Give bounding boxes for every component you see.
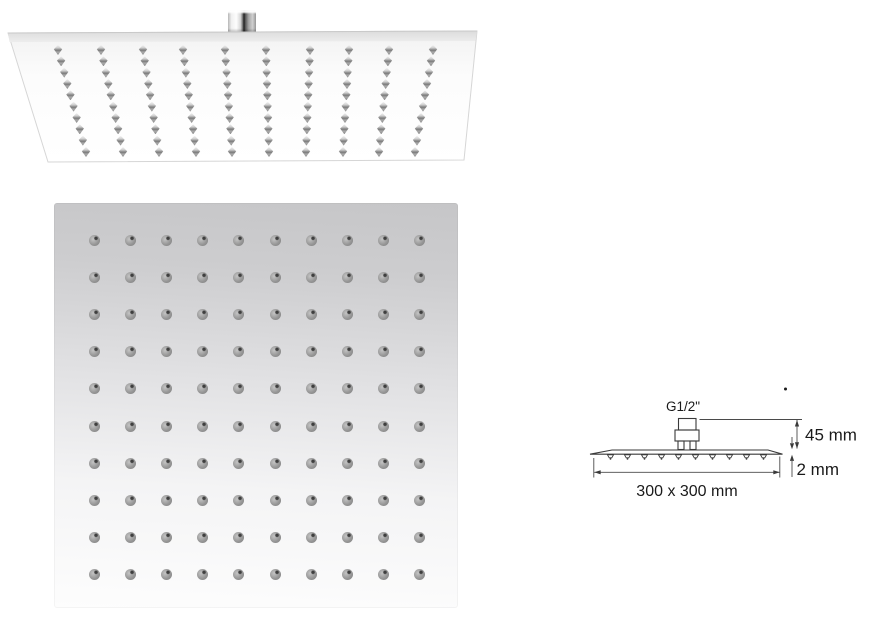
spray-nozzle	[89, 569, 100, 580]
spray-nozzle	[233, 272, 244, 283]
width-dimension	[594, 457, 780, 478]
spray-nozzle	[342, 235, 353, 246]
spray-nozzle	[378, 102, 389, 112]
spray-nozzle	[197, 346, 208, 357]
side-view-nozzle	[608, 455, 614, 458]
spray-nozzle	[414, 421, 425, 432]
spray-nozzle	[306, 532, 317, 543]
side-view-nozzle-tip	[627, 458, 629, 460]
spray-nozzle	[189, 136, 200, 146]
spray-nozzle	[416, 113, 427, 123]
side-view-nozzle-tip	[712, 458, 714, 460]
spray-nozzle	[197, 458, 208, 469]
spray-nozzle	[344, 45, 355, 55]
spray-nozzle	[220, 45, 231, 55]
side-view-nozzle-tip	[661, 458, 663, 460]
spray-nozzle	[182, 79, 193, 89]
spray-nozzle	[125, 569, 136, 580]
spray-nozzle	[343, 56, 354, 66]
spray-nozzle	[270, 532, 281, 543]
spray-nozzle	[306, 495, 317, 506]
spray-nozzle	[197, 569, 208, 580]
spray-nozzle	[378, 272, 389, 283]
spray-nozzle	[154, 147, 165, 157]
spray-nozzle	[225, 124, 236, 134]
spray-nozzle	[191, 147, 202, 157]
spray-nozzle	[197, 309, 208, 320]
spray-nozzle	[197, 383, 208, 394]
spray-nozzle	[197, 235, 208, 246]
spray-nozzle	[414, 532, 425, 543]
spray-nozzle	[270, 235, 281, 246]
spray-nozzle	[303, 79, 314, 89]
spray-nozzle	[178, 45, 189, 55]
spray-nozzle	[220, 56, 231, 66]
spray-nozzle	[414, 458, 425, 469]
spray-nozzle	[53, 45, 64, 55]
spray-nozzle	[62, 79, 73, 89]
spray-nozzle	[139, 56, 150, 66]
spray-nozzle	[342, 421, 353, 432]
spray-nozzle	[233, 421, 244, 432]
spray-nozzle	[378, 235, 389, 246]
spray-nozzle	[161, 235, 172, 246]
spray-nozzle	[89, 346, 100, 357]
spray-nozzle	[375, 136, 386, 146]
spray-nozzle	[233, 309, 244, 320]
spray-nozzle	[89, 532, 100, 543]
spray-nozzle	[302, 102, 313, 112]
spray-nozzle	[270, 458, 281, 469]
spray-nozzle	[74, 124, 85, 134]
spray-nozzle	[382, 56, 393, 66]
spray-nozzle	[65, 90, 76, 100]
side-view-nozzle	[676, 455, 682, 458]
spray-nozzle	[270, 309, 281, 320]
spray-nozzle	[301, 136, 312, 146]
spray-nozzle	[263, 124, 274, 134]
spray-nozzle	[146, 102, 157, 112]
side-view-nozzle-tip	[729, 458, 731, 460]
spray-nozzle	[68, 102, 79, 112]
spray-nozzle	[414, 309, 425, 320]
side-view-nozzle	[642, 455, 648, 458]
spray-nozzle	[71, 113, 82, 123]
spray-nozzle	[264, 147, 275, 157]
spray-nozzle	[110, 113, 121, 123]
spray-nozzle	[125, 383, 136, 394]
spray-nozzle	[270, 421, 281, 432]
spray-nozzle	[125, 421, 136, 432]
spray-nozzle	[118, 147, 129, 157]
spray-nozzle	[125, 532, 136, 543]
spray-nozzle	[180, 68, 191, 78]
side-view-nozzle	[761, 455, 767, 458]
side-view-nozzle-tip	[610, 458, 612, 460]
spray-nozzle	[233, 346, 244, 357]
spray-nozzle	[150, 124, 161, 134]
spray-nozzle	[306, 309, 317, 320]
spray-nozzle	[378, 309, 389, 320]
side-view-connector	[675, 419, 699, 450]
spray-nozzle	[414, 124, 425, 134]
bottom-nozzle-grid	[54, 203, 458, 608]
spray-nozzle	[89, 272, 100, 283]
spray-nozzle	[125, 235, 136, 246]
spray-nozzle	[125, 458, 136, 469]
spray-nozzle	[56, 56, 67, 66]
showerhead-perspective-view	[0, 0, 492, 175]
spray-nozzle	[340, 102, 351, 112]
spray-nozzle	[161, 569, 172, 580]
spray-nozzle	[263, 113, 274, 123]
spray-nozzle	[304, 56, 315, 66]
spray-nozzle	[342, 458, 353, 469]
spray-nozzle	[224, 113, 235, 123]
spray-nozzle	[306, 421, 317, 432]
spray-nozzle	[185, 102, 196, 112]
spray-nozzle	[306, 458, 317, 469]
side-view-plate	[590, 450, 783, 454]
spray-nozzle	[77, 136, 88, 146]
spray-nozzle	[338, 136, 349, 146]
side-view-nozzles	[608, 455, 767, 460]
spray-nozzle	[145, 90, 156, 100]
spray-nozzle	[89, 383, 100, 394]
side-view-nozzle-tip	[746, 458, 748, 460]
spray-nozzle	[143, 79, 154, 89]
spray-nozzle	[197, 532, 208, 543]
spray-nozzle	[426, 56, 437, 66]
spray-nozzle	[161, 458, 172, 469]
side-view-nozzle	[693, 455, 699, 458]
spray-nozzle	[188, 124, 199, 134]
spray-nozzle	[263, 136, 274, 146]
thickness-dimension	[790, 437, 794, 477]
spray-nozzle	[342, 272, 353, 283]
spray-nozzle	[342, 532, 353, 543]
spray-nozzle	[197, 495, 208, 506]
spray-nozzle	[418, 102, 429, 112]
spray-nozzle	[378, 383, 389, 394]
spray-nozzle	[378, 532, 389, 543]
spray-nozzle	[262, 90, 273, 100]
spray-nozzle	[226, 136, 237, 146]
spray-nozzle	[125, 272, 136, 283]
spray-nozzle	[233, 569, 244, 580]
spray-nozzle	[161, 346, 172, 357]
spray-nozzle	[340, 113, 351, 123]
spray-nozzle	[125, 495, 136, 506]
spray-nozzle	[138, 45, 149, 55]
spray-nozzle	[261, 45, 272, 55]
spray-nozzle	[89, 309, 100, 320]
side-view-nozzle-tip	[644, 458, 646, 460]
spray-nozzle	[303, 90, 314, 100]
spray-nozzle	[378, 421, 389, 432]
spray-nozzle	[59, 68, 70, 78]
spray-nozzle	[422, 79, 433, 89]
spray-nozzle	[161, 309, 172, 320]
spray-nozzle	[378, 458, 389, 469]
showerhead-bottom-view	[54, 203, 458, 608]
spray-nozzle	[270, 569, 281, 580]
thickness-dimension-label: 2 mm	[797, 460, 840, 479]
spray-nozzle	[270, 495, 281, 506]
spray-nozzle	[306, 235, 317, 246]
spray-nozzle	[141, 68, 152, 78]
height-dimension-label: 45 mm	[805, 426, 857, 445]
spray-nozzle	[342, 68, 353, 78]
spray-nozzle	[161, 532, 172, 543]
spray-nozzle	[161, 495, 172, 506]
spray-nozzle	[376, 124, 387, 134]
product-sheet: 45 mm 2 mm 300 x 300 mm G1/2"	[0, 0, 884, 624]
size-dimension-label: 300 x 300 mm	[636, 483, 737, 500]
spray-nozzle	[302, 113, 313, 123]
spray-nozzle	[342, 383, 353, 394]
spray-nozzle	[233, 495, 244, 506]
spray-nozzle	[148, 113, 159, 123]
spray-nozzle	[342, 346, 353, 357]
spray-nozzle	[342, 79, 353, 89]
spray-nozzle	[197, 272, 208, 283]
spray-nozzle	[301, 124, 312, 134]
spray-nozzle	[306, 569, 317, 580]
spray-nozzle	[223, 90, 234, 100]
spray-nozzle	[378, 569, 389, 580]
spray-nozzle	[161, 272, 172, 283]
spray-nozzle	[374, 147, 385, 157]
thread-size-label: G1/2"	[666, 399, 700, 414]
spray-nozzle	[270, 272, 281, 283]
spray-nozzle	[161, 421, 172, 432]
spray-nozzle	[384, 45, 395, 55]
side-view-nozzle-tip	[678, 458, 680, 460]
spray-nozzle	[305, 45, 316, 55]
spray-nozzle	[179, 56, 190, 66]
spray-nozzle	[270, 383, 281, 394]
spray-nozzle	[306, 346, 317, 357]
spray-nozzle	[420, 90, 431, 100]
spray-nozzle	[301, 147, 312, 157]
spray-nozzle	[183, 90, 194, 100]
spray-nozzle	[108, 102, 119, 112]
spray-nozzle	[378, 346, 389, 357]
spray-nozzle	[342, 309, 353, 320]
spray-nozzle	[227, 147, 238, 157]
spray-nozzle	[125, 309, 136, 320]
spray-nozzle	[89, 235, 100, 246]
spray-nozzle	[381, 68, 392, 78]
spray-nozzle	[197, 421, 208, 432]
spray-nozzle	[261, 56, 272, 66]
spray-nozzle	[233, 532, 244, 543]
spray-nozzle	[306, 272, 317, 283]
spray-nozzle	[428, 45, 439, 55]
spray-nozzle	[89, 458, 100, 469]
spray-nozzle	[98, 56, 109, 66]
spray-nozzle	[304, 68, 315, 78]
side-view-nozzle-tip	[763, 458, 765, 460]
spray-nozzle	[410, 147, 421, 157]
spray-nozzle	[342, 495, 353, 506]
spray-nozzle	[233, 235, 244, 246]
spray-nozzle	[233, 383, 244, 394]
spray-nozzle	[125, 346, 136, 357]
spray-nozzle	[105, 90, 116, 100]
spray-nozzle	[103, 79, 114, 89]
spray-nozzle	[261, 68, 272, 78]
spray-nozzle	[186, 113, 197, 123]
spray-nozzle	[414, 272, 425, 283]
side-view-nozzle	[710, 455, 716, 458]
spray-nozzle	[270, 346, 281, 357]
stray-dot	[784, 388, 787, 391]
spray-nozzle	[339, 124, 350, 134]
spray-nozzle	[89, 421, 100, 432]
side-view-nozzle	[659, 455, 665, 458]
spray-nozzle	[222, 79, 233, 89]
spray-nozzle	[342, 569, 353, 580]
side-view-nozzle-tip	[695, 458, 697, 460]
side-view-nozzle	[744, 455, 750, 458]
spray-nozzle	[221, 68, 232, 78]
spray-nozzle	[414, 495, 425, 506]
spray-nozzle	[161, 383, 172, 394]
spray-nozzle	[113, 124, 124, 134]
side-view-nozzle	[727, 455, 733, 458]
spray-nozzle	[262, 79, 273, 89]
spray-nozzle	[233, 458, 244, 469]
spray-nozzle	[341, 90, 352, 100]
spray-nozzle	[414, 235, 425, 246]
spray-nozzle	[414, 383, 425, 394]
spray-nozzle	[412, 136, 423, 146]
perspective-nozzle-grid	[0, 0, 492, 175]
spray-nozzle	[379, 90, 390, 100]
spray-nozzle	[96, 45, 107, 55]
spray-nozzle	[380, 79, 391, 89]
spray-nozzle	[306, 383, 317, 394]
dimension-drawing: 45 mm 2 mm 300 x 300 mm G1/2"	[580, 382, 884, 504]
spray-nozzle	[223, 102, 234, 112]
spray-nozzle	[262, 102, 273, 112]
height-dimension	[700, 420, 803, 449]
spray-nozzle	[414, 569, 425, 580]
side-view-nozzle	[625, 455, 631, 458]
spray-nozzle	[100, 68, 111, 78]
spray-nozzle	[115, 136, 126, 146]
spray-nozzle	[414, 346, 425, 357]
spray-nozzle	[424, 68, 435, 78]
spray-nozzle	[378, 495, 389, 506]
spray-nozzle	[377, 113, 388, 123]
spray-nozzle	[152, 136, 163, 146]
spray-nozzle	[89, 495, 100, 506]
spray-nozzle	[81, 147, 92, 157]
spray-nozzle	[338, 147, 349, 157]
